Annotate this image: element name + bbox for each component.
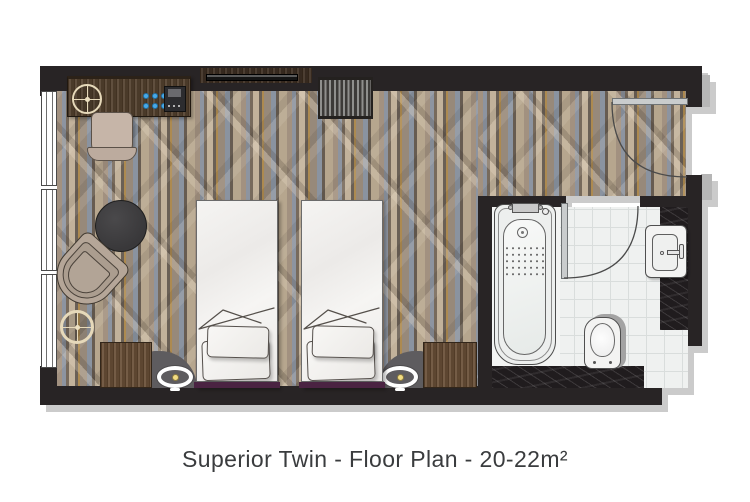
floor-plan-page: Superior Twin - Floor Plan - 20-22m² — [0, 0, 750, 502]
door-swing-and-fold-lines — [0, 0, 750, 502]
plan-caption: Superior Twin - Floor Plan - 20-22m² — [0, 446, 750, 473]
floor-plan — [0, 0, 750, 502]
bathroom-door-swing-arc — [564, 206, 638, 278]
entry-door-swing-arc — [612, 102, 687, 177]
bed-fold-left — [199, 308, 274, 329]
bed-fold-right — [304, 308, 379, 329]
